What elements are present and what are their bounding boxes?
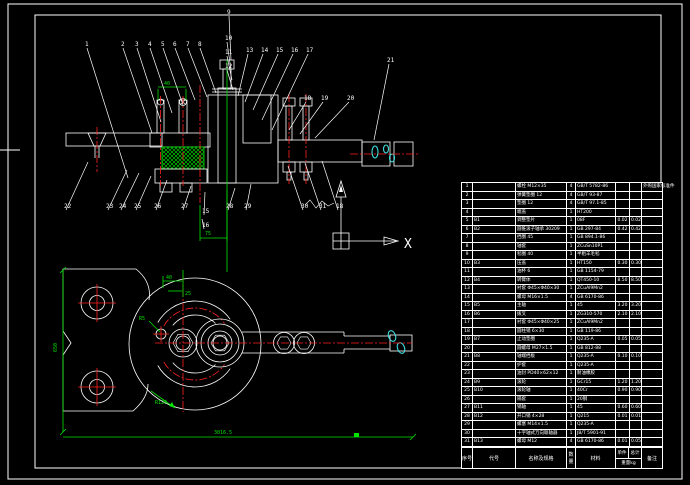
- bom-cell: 圆螺母 M27×1.5: [516, 345, 567, 353]
- bom-cell: 25: [462, 387, 473, 395]
- bom-cell: [616, 209, 630, 217]
- bom-row: 19B7止动垫圈1Q235-A0.050.05: [462, 336, 662, 345]
- balloon-number: 14: [261, 47, 269, 54]
- bom-cell: 0.10: [630, 353, 642, 361]
- bom-cell: 1: [567, 217, 576, 225]
- bom-cell: 1.20: [630, 379, 642, 387]
- bom-cell: 端盖: [516, 209, 567, 217]
- bom-cell: [616, 183, 630, 191]
- bom-cell: 1: [567, 387, 576, 395]
- bom-cell: GB/T 5782-86: [576, 183, 616, 191]
- ucs-icon: X: [333, 181, 412, 252]
- balloon-number: 17: [306, 47, 314, 54]
- bom-cell: 油封 PD40×62×12: [516, 370, 567, 378]
- balloon-number: 29: [244, 203, 252, 210]
- bom-cell: 11: [462, 268, 473, 276]
- bom-cell: [630, 430, 642, 438]
- balloon-leader: [227, 70, 233, 90]
- balloon-number: 30: [301, 203, 309, 210]
- bom-cell: [473, 362, 516, 370]
- bom-cell: [473, 234, 516, 242]
- balloon-leader: [315, 102, 349, 138]
- rotor-disc: [129, 278, 261, 410]
- bom-row: 7挡圈 451GB 894.1-86: [462, 234, 662, 243]
- bom-cell: B13: [473, 438, 516, 446]
- bom-cell: [630, 209, 642, 217]
- bom-cell: [616, 200, 630, 208]
- bom-cell: 1: [567, 268, 576, 276]
- bom-cell: 滚轮轴: [516, 387, 567, 395]
- bom-cell: 1: [567, 336, 576, 344]
- bom-cell: 1: [567, 421, 576, 429]
- bom-cell: [642, 200, 662, 208]
- bom-cell: 1: [567, 362, 576, 370]
- dim-overall-width: 3016.5: [214, 430, 232, 436]
- bom-cell: 衬套 Φ45×Φ40×25: [516, 319, 567, 327]
- bom-cell: [473, 285, 516, 293]
- balloon-leader: [262, 54, 293, 120]
- bom-cell: 0.90: [616, 387, 630, 395]
- bom-cell: [642, 319, 662, 327]
- bom-cell: [642, 370, 662, 378]
- bom-row: 23油封 PD40×62×121耐油橡胶: [462, 370, 662, 379]
- bom-header-unit-weight: 单件: [616, 448, 629, 458]
- bom-cell: 3: [462, 200, 473, 208]
- balloon-number: 23: [106, 203, 114, 210]
- bom-cell: B2: [473, 226, 516, 234]
- balloon-number: 15: [202, 208, 210, 215]
- bom-cell: 护套: [516, 362, 567, 370]
- bom-cell: 1: [567, 319, 576, 327]
- bom-cell: [473, 421, 516, 429]
- bom-cell: [642, 438, 662, 446]
- bom-row: 11油杯 61GB 1154-79: [462, 268, 662, 277]
- bom-cell: [630, 362, 642, 370]
- bom-header-name: 名称及规格: [516, 448, 567, 468]
- bom-cell: 开口销 4×28: [516, 413, 567, 421]
- balloon-number: 28: [226, 203, 234, 210]
- balloon-number: 1: [85, 41, 89, 48]
- bom-cell: 1: [567, 345, 576, 353]
- bom-row: 9毡圈 401半粗羊毛毡: [462, 251, 662, 260]
- bom-row: 17衬套 Φ45×Φ40×251ZCuAl9Mn2: [462, 319, 662, 328]
- bom-cell: [642, 421, 662, 429]
- bom-cell: [630, 234, 642, 242]
- bom-cell: [473, 192, 516, 200]
- balloon-leader: [137, 48, 161, 122]
- bom-row: 20圆螺母 M27×1.51GB 812-88: [462, 345, 662, 354]
- bom-cell: 止动垫圈: [516, 336, 567, 344]
- bom-cell: B10: [473, 387, 516, 395]
- bom-cell: [616, 319, 630, 327]
- bom-cell: [642, 404, 662, 412]
- bom-cell: ZG310-570: [576, 311, 616, 319]
- bom-cell: [642, 328, 662, 336]
- bom-cell: B9: [473, 379, 516, 387]
- bom-cell: 21: [462, 353, 473, 361]
- balloon-number: 5: [161, 41, 165, 48]
- bom-row: 28B12开口销 4×281Q2150.010.01: [462, 413, 662, 422]
- bom-cell: 1: [567, 226, 576, 234]
- bom-cell: B11: [473, 404, 516, 412]
- dimension-texts: 40 75 40 25 R5 R120 650 3016.5: [53, 81, 232, 436]
- bom-cell: 10: [462, 260, 473, 268]
- balloon-number: 15: [276, 47, 284, 54]
- bom-cell: 1: [567, 302, 576, 310]
- cad-viewport: 40 75 40 25 R5 R120 650 3016.5 X 1234567…: [0, 0, 690, 485]
- bom-cell: 拨叉: [516, 311, 567, 319]
- balloon-number: 21: [387, 57, 395, 64]
- balloon-number: 9: [227, 9, 231, 16]
- bom-cell: 4: [567, 200, 576, 208]
- bom-cell: [630, 268, 642, 276]
- bom-row: 24B9滚轮1GCr151.201.20: [462, 379, 662, 388]
- bom-cell: [630, 328, 642, 336]
- bom-cell: [630, 319, 642, 327]
- bom-cell: 4: [567, 183, 576, 191]
- bom-header-total-weight: 总计: [629, 448, 641, 458]
- bom-cell: 17: [462, 319, 473, 327]
- bom-cell: 31: [462, 438, 473, 446]
- bom-cell: 0.01: [616, 438, 630, 446]
- bom-cell: [642, 277, 662, 285]
- bom-row: 30十字轴式万向联轴器1JB/T 5901-91: [462, 430, 662, 439]
- bom-cell: 4: [462, 209, 473, 217]
- bom-cell: [616, 243, 630, 251]
- dim-marker: [354, 433, 359, 437]
- bom-cell: 主轴: [516, 302, 567, 310]
- upper-flange: [150, 133, 210, 147]
- bom-cell: [473, 200, 516, 208]
- bom-cell: 转臂体: [516, 277, 567, 285]
- bom-cell: Q235-A: [576, 336, 616, 344]
- bom-cell: 1: [567, 413, 576, 421]
- bom-cell: 0.05: [616, 336, 630, 344]
- bom-cell: GB 6170-86: [576, 438, 616, 446]
- bom-cell: 0.10: [616, 353, 630, 361]
- bom-row: 14螺母 M16×1.54GB 6170-86: [462, 294, 662, 303]
- bom-cell: 半粗羊毛毡: [576, 251, 616, 259]
- bom-cell: 0.30: [616, 260, 630, 268]
- balloon-number: 7: [186, 41, 190, 48]
- bom-cell: 油杯 6: [516, 268, 567, 276]
- bom-cell: [642, 302, 662, 310]
- bom-cell: [642, 217, 662, 225]
- bom-cell: B6: [473, 311, 516, 319]
- dim-plan-arc: R120: [155, 400, 167, 406]
- dim-arrowhead: [169, 402, 175, 408]
- bom-row: 29螺塞 M14×1.51Q235-A: [462, 421, 662, 430]
- bom-cell: 8: [462, 243, 473, 251]
- bom-cell: 4: [567, 192, 576, 200]
- bom-cell: [616, 370, 630, 378]
- bom-cell: 13: [462, 285, 473, 293]
- bom-cell: [616, 192, 630, 200]
- bom-cell: 1: [567, 234, 576, 242]
- bom-cell: 0.42: [616, 226, 630, 234]
- bom-cell: 垫圈 12: [516, 200, 567, 208]
- balloon-number: 24: [119, 203, 127, 210]
- bom-header-code: 代号: [473, 448, 516, 468]
- bom-cell: 2.10: [630, 311, 642, 319]
- bom-row: 22护套1Q235-A: [462, 362, 662, 371]
- bom-cell: [642, 192, 662, 200]
- bom-cell: 1: [567, 370, 576, 378]
- bom-cell: 1: [567, 328, 576, 336]
- bom-row: 25B10滚轮轴140Cr0.900.90: [462, 387, 662, 396]
- balloon-leader: [163, 48, 183, 105]
- bom-cell: 0.02: [616, 217, 630, 225]
- bom-cell: B7: [473, 336, 516, 344]
- bom-row: 5B1调整垫片108F0.020.02: [462, 217, 662, 226]
- bom-cell: GB/T 97.1-85: [576, 200, 616, 208]
- bom-cell: [473, 345, 516, 353]
- bom-row: 26隔套120钢: [462, 396, 662, 405]
- bom-cell: [616, 396, 630, 404]
- bom-cell: B3: [473, 260, 516, 268]
- bom-header-no: 序号: [462, 448, 473, 468]
- balloon-number: 11: [225, 49, 233, 56]
- bom-cell: [642, 209, 662, 217]
- bom-cell: 滚轮: [516, 379, 567, 387]
- dim-hub-bore: 75: [205, 231, 211, 237]
- bom-cell: B1: [473, 217, 516, 225]
- bom-row: 10B3压盖1HT1500.300.30: [462, 260, 662, 269]
- bom-cell: [473, 294, 516, 302]
- bom-row: 16B6拨叉1ZG310-5702.102.10: [462, 311, 662, 320]
- bom-cell: B4: [473, 277, 516, 285]
- balloon-number: 16: [291, 47, 299, 54]
- bom-cell: 1: [567, 243, 576, 251]
- ucs-x-label: X: [404, 237, 412, 252]
- bom-row: 21B8轴端挡板1Q235-A0.100.10: [462, 353, 662, 362]
- bom-cell: [473, 430, 516, 438]
- bom-cell: 0.05: [630, 438, 642, 446]
- bom-cell: [616, 285, 630, 293]
- bom-cell: 螺母 M12: [516, 438, 567, 446]
- bom-cell: 3.20: [616, 302, 630, 310]
- bom-cell: GB 812-88: [576, 345, 616, 353]
- balloon-leader: [238, 54, 248, 96]
- bom-cell: GB 297-84: [576, 226, 616, 234]
- bom-cell: [642, 345, 662, 353]
- bom-cell: 压盖: [516, 260, 567, 268]
- bom-cell: 12: [462, 277, 473, 285]
- bom-cell: GB 6170-86: [576, 294, 616, 302]
- bom-cell: 十字轴式万向联轴器: [516, 430, 567, 438]
- bom-cell: 隔套: [516, 396, 567, 404]
- bom-cell: Q235-A: [576, 353, 616, 361]
- bom-cell: [642, 311, 662, 319]
- balloon-number: 22: [64, 203, 72, 210]
- bom-cell: 16: [462, 311, 473, 319]
- bom-cell: [642, 396, 662, 404]
- bom-cell: GCr15: [576, 379, 616, 387]
- bom-cell: [630, 243, 642, 251]
- bom-row: 3垫圈 124GB/T 97.1-85: [462, 200, 662, 209]
- bom-cell: 1: [567, 260, 576, 268]
- lower-flange: [155, 169, 207, 183]
- bom-row: 15B5主轴1453.203.20: [462, 302, 662, 311]
- bom-cell: 1: [567, 353, 576, 361]
- bom-cell: 26: [462, 396, 473, 404]
- bom-cell: [616, 430, 630, 438]
- bom-cell: 9: [462, 251, 473, 259]
- bom-cell: [642, 430, 662, 438]
- bom-rows: 1螺栓 M12×354GB/T 5782-86外购国家标准件2弹簧垫圈 124G…: [462, 183, 662, 447]
- bom-cell: [473, 370, 516, 378]
- balloon-number: 18: [336, 203, 344, 210]
- dim-overall-height: 650: [53, 343, 59, 352]
- bom-cell: 5: [462, 217, 473, 225]
- bom-cell: [473, 319, 516, 327]
- bom-cell: [473, 183, 516, 191]
- bom-cell: [473, 396, 516, 404]
- dim-stud-spacing: 40: [164, 81, 170, 87]
- balloon-leader: [87, 48, 128, 178]
- bom-cell: [616, 345, 630, 353]
- bom-cell: 1: [567, 209, 576, 217]
- balloon-number: 2: [121, 41, 125, 48]
- bom-cell: 45: [576, 302, 616, 310]
- bom-cell: 30: [462, 430, 473, 438]
- bom-cell: [630, 251, 642, 259]
- bom-cell: 40Cr: [576, 387, 616, 395]
- dim-plan-a: 40: [166, 275, 172, 281]
- bom-cell: 20: [462, 345, 473, 353]
- bom-cell: GB/T 93-87: [576, 192, 616, 200]
- bom-cell: 0.05: [630, 336, 642, 344]
- bom-cell: [616, 328, 630, 336]
- bom-row: 27B11销轴1450.600.60: [462, 404, 662, 413]
- bom-cell: 耐油橡胶: [576, 370, 616, 378]
- bom-cell: 20钢: [576, 396, 616, 404]
- bom-cell: 23: [462, 370, 473, 378]
- bom-cell: 1: [567, 277, 576, 285]
- bom-cell: [473, 243, 516, 251]
- bom-cell: [642, 260, 662, 268]
- bom-cell: GB 894.1-86: [576, 234, 616, 242]
- bom-cell: 0.60: [630, 404, 642, 412]
- bom-cell: 0.30: [630, 260, 642, 268]
- bom-cell: 8.50: [630, 277, 642, 285]
- bom-table: 1螺栓 M12×354GB/T 5782-86外购国家标准件2弹簧垫圈 124G…: [461, 182, 663, 469]
- bom-cell: 1: [567, 430, 576, 438]
- bom-cell: [630, 370, 642, 378]
- right-arm: [278, 140, 362, 162]
- bom-cell: 45: [576, 404, 616, 412]
- bom-cell: B5: [473, 302, 516, 310]
- bom-cell: 19: [462, 336, 473, 344]
- section-view: [66, 60, 418, 272]
- bom-cell: [630, 294, 642, 302]
- plan-view: [60, 267, 416, 440]
- bom-cell: 1: [567, 379, 576, 387]
- bom-cell: 衬套 Φ45×Φ40×30: [516, 285, 567, 293]
- bom-row: 1螺栓 M12×354GB/T 5782-86外购国家标准件: [462, 183, 662, 192]
- bom-cell: ZCuAl9Mn2: [576, 319, 616, 327]
- bom-cell: [642, 234, 662, 242]
- bom-cell: 弹簧垫圈 12: [516, 192, 567, 200]
- bom-cell: 1.20: [616, 379, 630, 387]
- bom-cell: [630, 396, 642, 404]
- bom-header-weight: 单件 总计 重量kg: [616, 448, 642, 468]
- bom-row: 18圆柱销 6×301GB 119-86: [462, 328, 662, 337]
- bom-cell: 0.42: [630, 226, 642, 234]
- balloon-number: 8: [198, 41, 202, 48]
- balloon-number: 25: [134, 203, 142, 210]
- bom-header-qty: 数量: [567, 448, 576, 468]
- bom-cell: [642, 285, 662, 293]
- bom-cell: ZCuSn10P1: [576, 243, 616, 251]
- bom-cell: 4: [567, 294, 576, 302]
- bom-cell: 28: [462, 413, 473, 421]
- bom-cell: GB 1154-79: [576, 268, 616, 276]
- bom-cell: [616, 268, 630, 276]
- bom-cell: 4: [567, 438, 576, 446]
- bom-cell: 22: [462, 362, 473, 370]
- bom-cell: 29: [462, 421, 473, 429]
- bom-cell: [616, 421, 630, 429]
- bom-cell: 0.01: [616, 413, 630, 421]
- bom-row: 4端盖1HT200: [462, 209, 662, 218]
- bom-cell: [642, 268, 662, 276]
- bom-cell: 08F: [576, 217, 616, 225]
- balloon-number: 31: [319, 203, 327, 210]
- bom-cell: [630, 285, 642, 293]
- bom-cell: 1: [567, 285, 576, 293]
- bom-cell: Q215: [576, 413, 616, 421]
- bom-cell: [616, 362, 630, 370]
- bom-cell: [642, 387, 662, 395]
- bom-cell: 0.02: [630, 217, 642, 225]
- part-balloons: 1234567891011121314151617181920212223242…: [64, 9, 395, 229]
- bom-row: 8轴套1ZCuSn10P1: [462, 243, 662, 252]
- bom-cell: 15: [462, 302, 473, 310]
- bom-cell: [630, 345, 642, 353]
- bom-cell: 14: [462, 294, 473, 302]
- bom-cell: 螺母 M16×1.5: [516, 294, 567, 302]
- bom-cell: HT150: [576, 260, 616, 268]
- bom-cell: B8: [473, 353, 516, 361]
- balloon-leader: [253, 54, 278, 110]
- bom-cell: 2: [462, 192, 473, 200]
- bom-cell: [473, 268, 516, 276]
- bom-cell: 1: [567, 311, 576, 319]
- bom-cell: [642, 226, 662, 234]
- bom-cell: [642, 243, 662, 251]
- bom-cell: [473, 328, 516, 336]
- bom-cell: [642, 251, 662, 259]
- bom-cell: 2.10: [616, 311, 630, 319]
- bom-cell: 0.90: [630, 387, 642, 395]
- dim-plan-b: 25: [185, 291, 191, 297]
- bom-cell: [473, 251, 516, 259]
- bom-cell: 18: [462, 328, 473, 336]
- balloon-number: 18: [304, 95, 312, 102]
- dim-plan-lead: R5: [139, 316, 145, 322]
- bom-cell: 调整垫片: [516, 217, 567, 225]
- bom-cell: 圆锥滚子轴承 30209: [516, 226, 567, 234]
- bom-cell: [642, 413, 662, 421]
- bom-cell: Q235-A: [576, 421, 616, 429]
- bom-cell: 27: [462, 404, 473, 412]
- balloon-number: 13: [246, 47, 254, 54]
- bom-cell: [630, 200, 642, 208]
- balloon-number: 6: [173, 41, 177, 48]
- bom-cell: [616, 251, 630, 259]
- balloon-number: 4: [148, 41, 152, 48]
